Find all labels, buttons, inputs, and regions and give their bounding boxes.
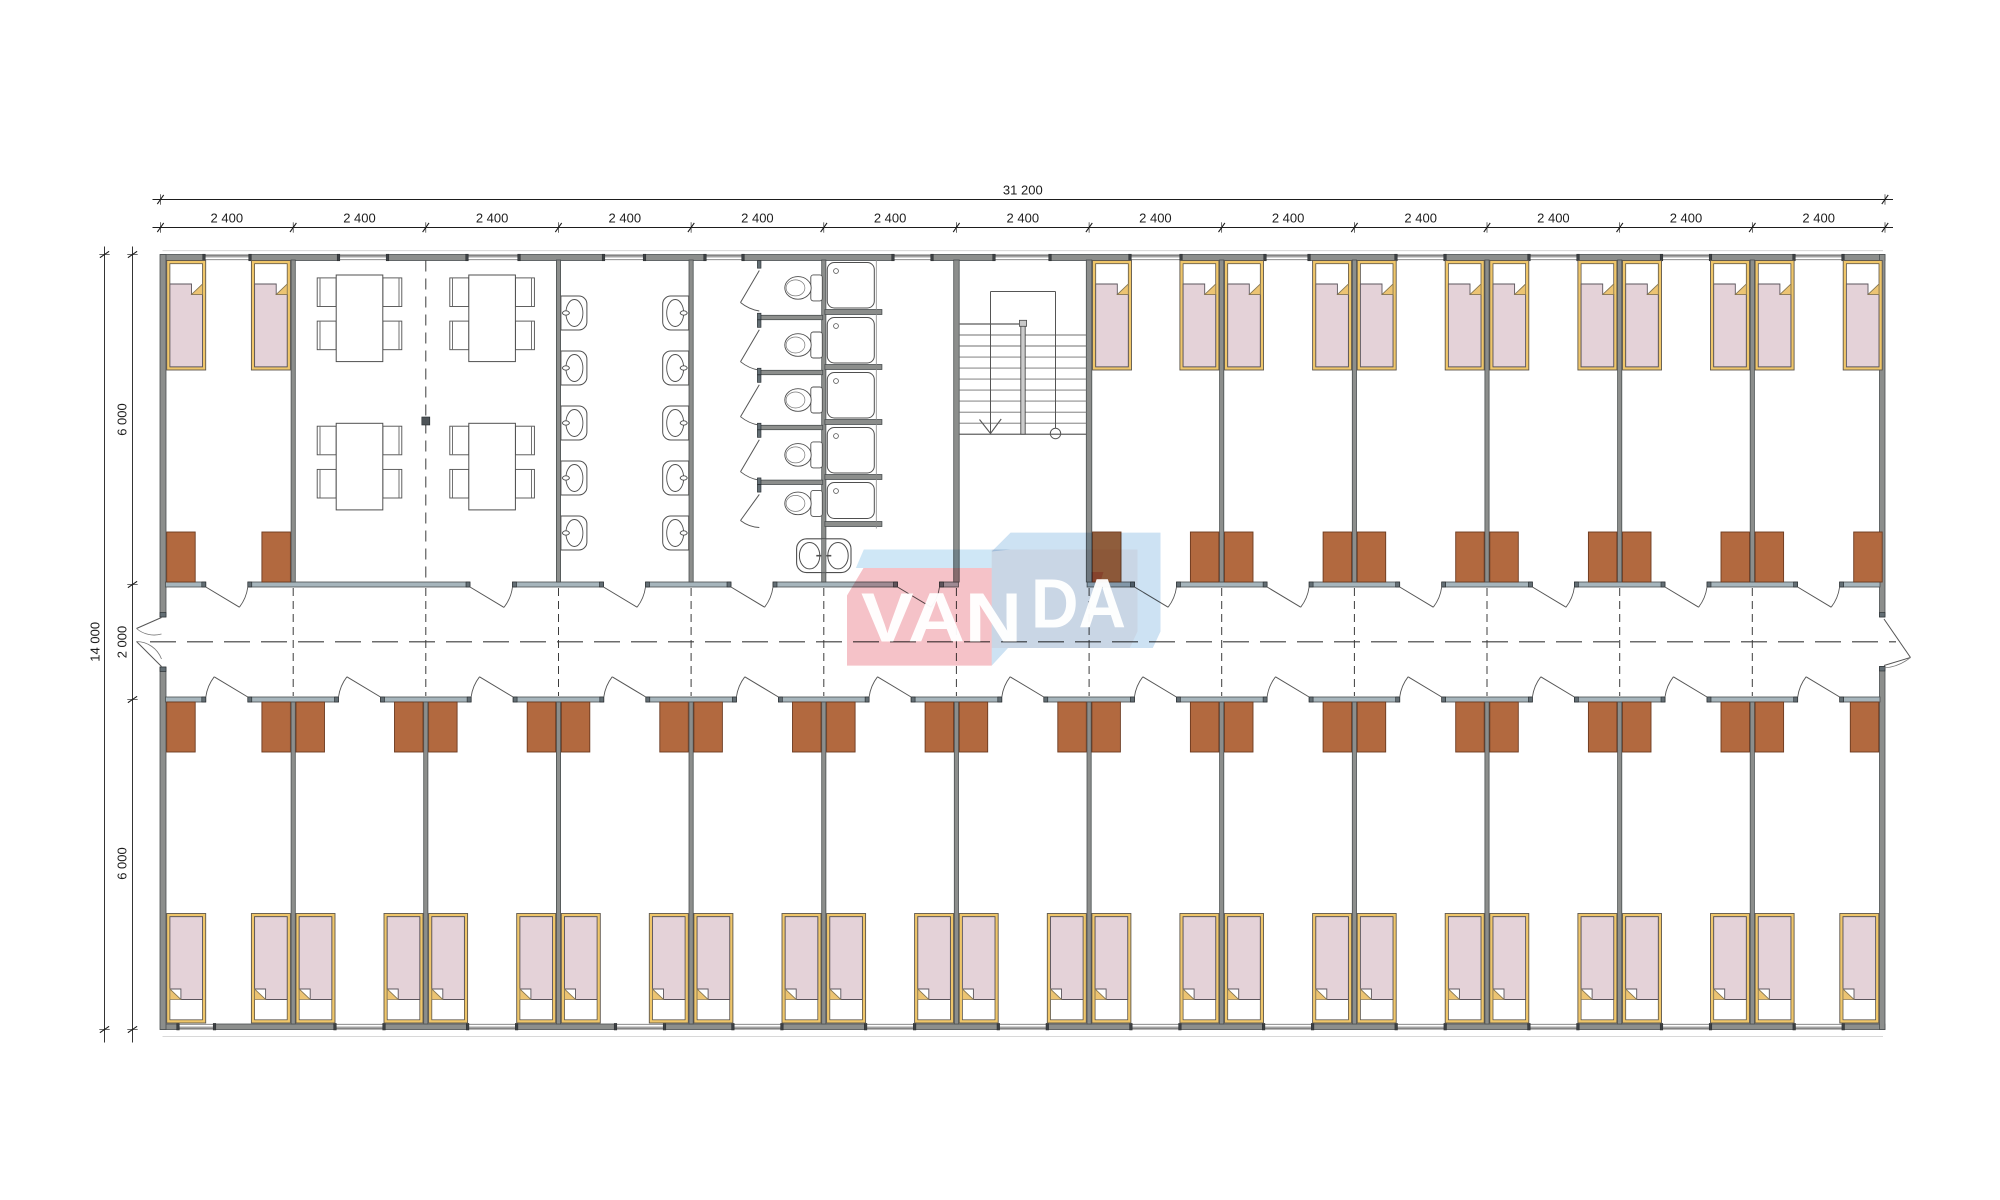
svg-text:2 400: 2 400 [1139,211,1172,226]
svg-text:2 000: 2 000 [115,626,130,659]
svg-text:2 400: 2 400 [874,211,907,226]
svg-text:2 400: 2 400 [211,211,244,226]
svg-text:6 000: 6 000 [115,847,130,880]
svg-text:2 400: 2 400 [1007,211,1040,226]
svg-text:2 400: 2 400 [1404,211,1437,226]
svg-text:2 400: 2 400 [1670,211,1703,226]
svg-text:6 000: 6 000 [115,403,130,436]
svg-text:14 000: 14 000 [88,622,103,662]
svg-text:2 400: 2 400 [476,211,509,226]
svg-text:2 400: 2 400 [343,211,376,226]
svg-text:31 200: 31 200 [1003,183,1043,198]
svg-text:DA: DA [1031,565,1126,643]
svg-text:2 400: 2 400 [1802,211,1835,226]
svg-text:2 400: 2 400 [1272,211,1305,226]
svg-text:2 400: 2 400 [1537,211,1570,226]
svg-text:2 400: 2 400 [741,211,774,226]
svg-text:2 400: 2 400 [609,211,642,226]
svg-text:VAN: VAN [861,579,1022,657]
